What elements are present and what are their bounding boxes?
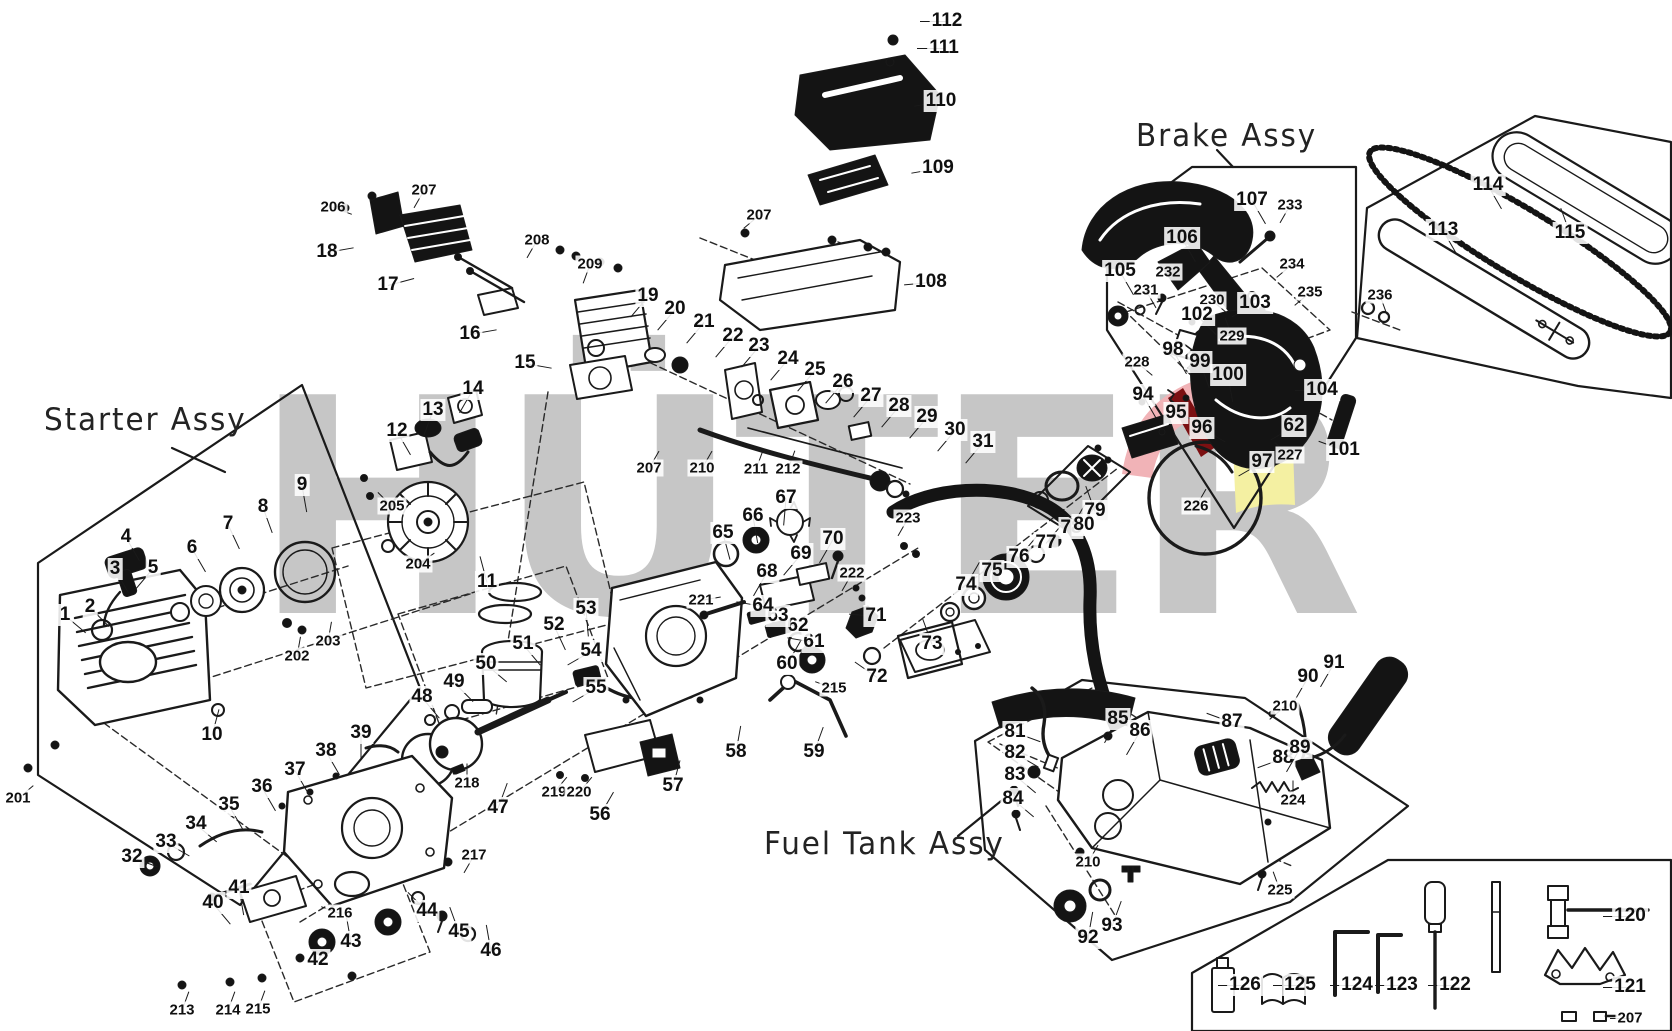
part-label-92: 92 xyxy=(1075,927,1100,949)
part-label-59: 59 xyxy=(801,741,826,763)
part-label-103: 103 xyxy=(1237,292,1273,314)
part-label-73: 73 xyxy=(919,633,944,655)
part-label-9: 9 xyxy=(295,474,310,496)
part-label-5: 5 xyxy=(146,557,161,579)
part-label-102: 102 xyxy=(1179,304,1215,326)
part-label-91: 91 xyxy=(1321,652,1346,674)
assembly-title-starter: Starter Assy xyxy=(44,402,247,438)
part-label-32: 32 xyxy=(119,846,144,868)
part-label-100: 100 xyxy=(1210,364,1246,386)
part-label-203: 203 xyxy=(313,633,342,650)
part-label-205: 205 xyxy=(377,498,406,515)
part-label-35: 35 xyxy=(216,794,241,816)
part-label-235: 235 xyxy=(1295,284,1324,301)
part-label-110: 110 xyxy=(924,90,959,112)
part-label-212: 212 xyxy=(773,461,802,478)
part-label-89: 89 xyxy=(1287,737,1312,759)
part-label-232: 232 xyxy=(1153,264,1182,281)
part-label-207: 207 xyxy=(1615,1010,1644,1027)
part-label-201: 201 xyxy=(3,790,32,807)
part-label-48: 48 xyxy=(409,686,434,708)
part-label-96: 96 xyxy=(1189,417,1214,439)
part-label-209: 209 xyxy=(575,256,604,273)
part-label-106: 106 xyxy=(1164,227,1200,249)
part-label-6: 6 xyxy=(185,537,200,559)
part-label-120: 120 xyxy=(1612,905,1648,927)
part-label-66: 66 xyxy=(740,505,765,527)
part-label-216: 216 xyxy=(325,905,354,922)
part-label-94: 94 xyxy=(1130,384,1155,406)
part-label-76: 76 xyxy=(1006,546,1031,568)
part-label-50: 50 xyxy=(473,653,498,675)
part-label-202: 202 xyxy=(282,648,311,665)
part-label-51: 51 xyxy=(510,633,535,655)
part-label-70: 70 xyxy=(820,528,845,550)
part-label-207: 207 xyxy=(744,207,773,224)
part-label-109: 109 xyxy=(920,157,956,179)
part-label-125: 125 xyxy=(1282,974,1318,996)
part-label-227: 227 xyxy=(1275,447,1304,464)
part-label-112: 112 xyxy=(930,10,965,32)
part-label-210: 210 xyxy=(1073,854,1102,871)
part-label-124: 124 xyxy=(1339,974,1375,996)
part-label-210: 210 xyxy=(1270,698,1299,715)
part-label-207: 207 xyxy=(409,182,438,199)
part-label-215: 215 xyxy=(819,680,848,697)
part-label-68: 68 xyxy=(754,561,779,583)
part-label-39: 39 xyxy=(348,722,373,744)
part-label-10: 10 xyxy=(199,724,224,746)
part-label-90: 90 xyxy=(1295,666,1320,688)
part-label-93: 93 xyxy=(1099,915,1124,937)
part-label-81: 81 xyxy=(1002,721,1027,743)
part-label-15: 15 xyxy=(512,352,537,374)
part-label-25: 25 xyxy=(802,359,827,381)
part-label-213: 213 xyxy=(167,1002,196,1019)
part-label-62: 62 xyxy=(1281,415,1306,437)
part-label-233: 233 xyxy=(1275,197,1304,214)
part-label-87: 87 xyxy=(1219,711,1244,733)
part-label-14: 14 xyxy=(460,378,485,400)
part-label-60: 60 xyxy=(774,653,799,675)
part-label-80: 80 xyxy=(1071,514,1096,536)
part-label-13: 13 xyxy=(420,399,445,421)
part-label-229: 229 xyxy=(1217,328,1246,345)
part-label-34: 34 xyxy=(183,813,208,835)
part-label-107: 107 xyxy=(1234,189,1270,211)
part-label-220: 220 xyxy=(564,784,593,801)
part-label-43: 43 xyxy=(338,931,363,953)
part-label-52: 52 xyxy=(541,614,566,636)
part-label-18: 18 xyxy=(314,241,339,263)
part-label-225: 225 xyxy=(1265,882,1294,899)
part-label-56: 56 xyxy=(587,804,612,826)
part-label-19: 19 xyxy=(635,285,660,307)
part-label-215: 215 xyxy=(243,1001,272,1018)
part-label-21: 21 xyxy=(691,311,716,333)
part-label-121: 121 xyxy=(1612,976,1648,998)
part-label-206: 206 xyxy=(318,199,347,216)
part-label-214: 214 xyxy=(213,1002,242,1019)
part-label-114: 114 xyxy=(1471,174,1506,196)
part-label-12: 12 xyxy=(384,420,409,442)
part-label-108: 108 xyxy=(913,271,949,293)
part-label-17: 17 xyxy=(375,274,400,296)
part-label-27: 27 xyxy=(858,385,883,407)
part-label-217: 217 xyxy=(459,847,488,864)
part-label-126: 126 xyxy=(1227,974,1263,996)
part-label-228: 228 xyxy=(1122,354,1151,371)
part-label-98: 98 xyxy=(1160,339,1185,361)
part-label-31: 31 xyxy=(970,431,995,453)
part-label-75: 75 xyxy=(979,560,1004,582)
part-label-82: 82 xyxy=(1002,742,1027,764)
assembly-title-brake: Brake Assy xyxy=(1136,118,1317,154)
part-label-40: 40 xyxy=(200,892,225,914)
part-label-8: 8 xyxy=(256,496,271,518)
part-label-67: 67 xyxy=(773,487,798,509)
part-label-72: 72 xyxy=(864,666,889,688)
part-label-65: 65 xyxy=(710,522,735,544)
part-label-123: 123 xyxy=(1384,974,1420,996)
part-label-28: 28 xyxy=(886,395,911,417)
part-label-207: 207 xyxy=(634,460,663,477)
part-label-2: 2 xyxy=(83,596,98,618)
part-label-53: 53 xyxy=(573,598,598,620)
part-label-105: 105 xyxy=(1102,260,1138,282)
part-label-236: 236 xyxy=(1365,287,1394,304)
part-label-71: 71 xyxy=(863,605,888,627)
part-label-211: 211 xyxy=(742,461,770,478)
part-label-38: 38 xyxy=(313,740,338,762)
part-label-113: 113 xyxy=(1426,219,1461,241)
part-label-49: 49 xyxy=(441,671,466,693)
part-label-1: 1 xyxy=(58,604,73,626)
part-label-97: 97 xyxy=(1249,451,1274,473)
part-label-7: 7 xyxy=(221,513,236,535)
part-label-26: 26 xyxy=(830,371,855,393)
part-label-231: 231 xyxy=(1131,282,1160,299)
part-label-204: 204 xyxy=(403,556,432,573)
part-label-16: 16 xyxy=(457,323,482,345)
part-label-83: 83 xyxy=(1002,764,1027,786)
part-label-45: 45 xyxy=(446,921,471,943)
part-label-55: 55 xyxy=(583,677,608,699)
part-label-4: 4 xyxy=(119,526,134,548)
part-label-42: 42 xyxy=(305,949,330,971)
part-label-86: 86 xyxy=(1127,720,1152,742)
part-label-99: 99 xyxy=(1187,351,1212,373)
part-label-57: 57 xyxy=(660,775,685,797)
part-label-234: 234 xyxy=(1277,256,1306,273)
part-label-58: 58 xyxy=(723,741,748,763)
part-label-208: 208 xyxy=(522,232,551,249)
part-label-54: 54 xyxy=(578,640,603,662)
part-label-47: 47 xyxy=(485,797,510,819)
part-label-22: 22 xyxy=(720,325,745,347)
part-label-30: 30 xyxy=(942,419,967,441)
part-label-20: 20 xyxy=(662,298,687,320)
part-label-41: 41 xyxy=(226,877,251,899)
part-label-37: 37 xyxy=(282,759,307,781)
part-label-69: 69 xyxy=(788,543,813,565)
callout-layer: 1121111101091082072062071817162082091519… xyxy=(0,0,1672,1031)
part-label-46: 46 xyxy=(478,940,503,962)
part-label-226: 226 xyxy=(1181,498,1210,515)
part-label-64: 64 xyxy=(750,595,775,617)
part-label-3: 3 xyxy=(108,558,123,580)
part-label-122: 122 xyxy=(1437,974,1473,996)
part-label-11: 11 xyxy=(475,571,499,593)
part-label-111: 111 xyxy=(927,37,961,59)
part-label-115: 115 xyxy=(1553,222,1588,244)
part-label-101: 101 xyxy=(1326,439,1362,461)
part-label-74: 74 xyxy=(953,574,978,596)
part-label-222: 222 xyxy=(837,565,866,582)
part-label-218: 218 xyxy=(452,775,481,792)
parts-diagram-page: HÜTER xyxy=(0,0,1672,1031)
part-label-224: 224 xyxy=(1278,792,1307,809)
part-label-44: 44 xyxy=(414,900,439,922)
part-label-36: 36 xyxy=(249,776,274,798)
part-label-29: 29 xyxy=(914,406,939,428)
part-label-33: 33 xyxy=(153,831,178,853)
part-label-23: 23 xyxy=(746,335,771,357)
assembly-title-fuel-tank: Fuel Tank Assy xyxy=(764,826,1005,862)
part-label-221: 221 xyxy=(686,592,715,609)
part-label-77: 77 xyxy=(1033,532,1058,554)
part-label-24: 24 xyxy=(775,348,800,370)
part-label-84: 84 xyxy=(1000,788,1025,810)
part-label-95: 95 xyxy=(1163,402,1188,424)
part-label-223: 223 xyxy=(893,510,922,527)
part-label-210: 210 xyxy=(687,460,716,477)
part-label-104: 104 xyxy=(1304,379,1340,401)
